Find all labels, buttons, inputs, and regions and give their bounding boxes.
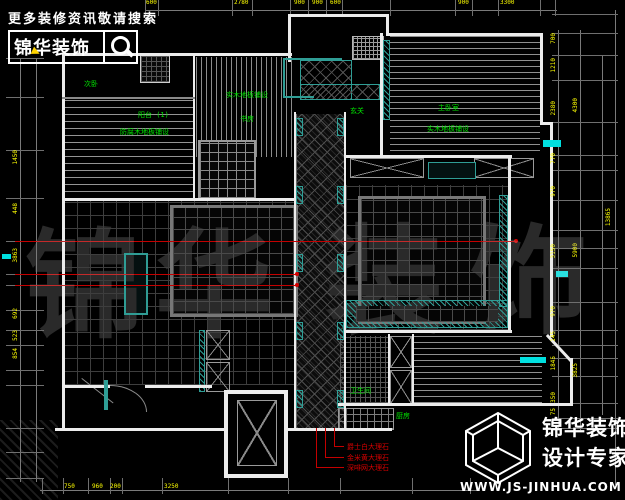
dim-extension-line <box>6 345 44 346</box>
dim-extension-line <box>162 478 163 494</box>
dim-chain-line <box>20 58 21 482</box>
red-leader-dot <box>514 239 518 243</box>
wall-segment <box>388 334 390 404</box>
dim-extension-line <box>552 80 618 81</box>
red-leader-line <box>334 428 335 447</box>
dim-top: 3300 <box>500 0 514 6</box>
dim-top: 600 <box>146 0 157 6</box>
shaft-xbox <box>390 370 412 404</box>
cad-floorplan-screenshot: 爵士白大理石 金米黄大理石 深啡网大理石 次卧 阳台 (1) 防腐木地板铺设 实… <box>0 0 625 500</box>
dim-extension-line <box>232 0 233 16</box>
dim-extension-line <box>412 478 413 494</box>
dim-extension-line <box>390 0 391 16</box>
red-leader-line <box>316 467 344 468</box>
dim-extension-line <box>472 0 473 16</box>
leftbed-area-inner <box>170 205 298 317</box>
teal-pilaster <box>337 118 344 136</box>
brand-slogan: 更多装修资讯敬请搜索 <box>8 8 158 27</box>
dim-left: 448 <box>12 203 19 214</box>
room-label-study: 书房 <box>240 114 254 124</box>
corner-watermark-pattern <box>0 420 58 500</box>
footer-website: WWW.JS-JINHUA.COM <box>460 480 622 494</box>
room-balcony1-floor <box>65 100 193 198</box>
dim-extension-line <box>552 268 618 269</box>
dim-chain-line <box>602 55 603 415</box>
wardrobe-teal <box>124 253 148 315</box>
teal-line <box>283 58 285 98</box>
wall-segment <box>344 155 512 158</box>
footer-brand-block: 锦华装饰 设计专家 WWW.JS-JINHUA.COM <box>458 404 625 500</box>
magnifier-icon <box>111 36 130 55</box>
shaft-xbox <box>206 330 230 360</box>
red-leader-line <box>316 428 317 468</box>
red-leader-dot <box>295 272 299 276</box>
wall-segment <box>145 385 212 388</box>
beam-xbox <box>350 158 424 178</box>
dim-extension-line <box>552 248 618 249</box>
wall-segment <box>62 53 65 431</box>
dim-extension-line <box>498 0 499 16</box>
dim-extension-line <box>6 478 44 479</box>
red-leader-line <box>15 241 516 242</box>
teal-pilaster <box>337 322 344 340</box>
wall-segment <box>386 33 543 36</box>
dim-chain-line <box>36 58 37 482</box>
red-leader-line <box>15 274 297 275</box>
dim-extension-line <box>252 0 253 16</box>
dim-top: 900 <box>294 0 305 6</box>
material-callout: 金米黄大理石 <box>347 453 389 463</box>
dim-extension-line <box>288 478 289 494</box>
dim-top: 900 <box>458 0 469 6</box>
dim-top: 2780 <box>234 0 248 6</box>
wall-segment <box>344 330 512 333</box>
dim-left: 1450 <box>12 150 19 164</box>
dim-top: 600 <box>330 0 341 6</box>
dim-extension-line <box>552 14 618 15</box>
dim-right-total: 13865 <box>605 208 612 226</box>
elevator-x <box>237 400 277 466</box>
room-label-bedroom2: 次卧 <box>84 79 98 89</box>
wall-segment <box>540 33 543 125</box>
beam-teal-panel <box>428 162 476 179</box>
cyan-highlight <box>2 254 11 259</box>
dim-right: 700 <box>550 33 557 44</box>
wall-segment <box>62 198 295 201</box>
wall-thin <box>62 97 195 99</box>
dim-right: 970 <box>550 186 557 197</box>
teal-pilaster <box>296 118 303 136</box>
teal-hatch-wall <box>499 195 508 307</box>
dim-extension-line <box>228 478 229 494</box>
dim-right: 1845 <box>550 356 557 370</box>
teal-pilaster <box>296 390 303 408</box>
corridor-wall <box>294 112 296 430</box>
teal-pilaster <box>296 186 303 204</box>
dim-bottom: 960 <box>92 483 103 490</box>
teal-pilaster <box>337 254 344 272</box>
door-swing-arc <box>110 385 147 412</box>
shaft-xbox <box>390 336 412 368</box>
finish-label-balcony1: 防腐木地板铺设 <box>120 127 169 137</box>
dim-right: 145 <box>550 331 557 342</box>
teal-hatch-wall <box>383 40 390 120</box>
beam-xbox <box>474 158 534 178</box>
footer-brand-name: 锦华装饰 <box>542 412 625 442</box>
room-label-master: 主卧室 <box>438 103 459 113</box>
dim-extension-line <box>158 0 159 16</box>
wall-segment <box>412 334 414 404</box>
dim-right-outer: 4300 <box>572 98 579 112</box>
room-kitchen-floor <box>414 336 542 403</box>
dim-extension-line <box>552 170 618 171</box>
dim-chain-line <box>40 490 480 491</box>
cube-logo-icon <box>458 410 538 486</box>
dim-extension-line <box>6 452 44 453</box>
wall-segment <box>288 14 389 17</box>
dim-extension-line <box>6 370 44 371</box>
dim-left: 3863 <box>12 248 19 262</box>
cyan-highlight <box>520 357 546 363</box>
wall-segment <box>55 428 227 431</box>
dim-extension-line <box>552 122 618 123</box>
dim-extension-line <box>552 155 618 156</box>
room-master-floor <box>390 36 540 156</box>
dim-top: 900 <box>312 0 323 6</box>
dim-extension-line <box>552 358 618 359</box>
header-brand-block: 更多装修资讯敬请搜索 锦华装饰 <box>8 8 158 64</box>
room-label-balcony1: 阳台 (1) <box>138 110 169 120</box>
dim-extension-line <box>6 198 44 199</box>
dim-extension-line <box>552 376 618 377</box>
dim-extension-line <box>552 302 618 303</box>
hatch-band-inner-grid <box>356 306 498 322</box>
brand-name: 锦华装饰 <box>10 34 90 60</box>
dim-extension-line <box>552 55 618 56</box>
corridor-wall <box>344 112 346 430</box>
footer-tagline: 设计专家 <box>542 442 625 472</box>
room-label-kitchen: 厨房 <box>396 411 410 421</box>
teal-pilaster <box>296 322 303 340</box>
dim-extension-line <box>6 385 44 386</box>
dim-right-outer: 3825 <box>572 363 579 377</box>
brand-divider <box>103 32 105 62</box>
dim-bottom: 3250 <box>164 483 178 490</box>
dim-right: 1210 <box>550 58 557 72</box>
dim-extension-line <box>6 97 44 98</box>
cyan-highlight <box>556 271 568 277</box>
dim-extension-line <box>552 345 618 346</box>
dim-bottom: 200 <box>110 483 121 490</box>
dim-extension-line <box>340 478 341 494</box>
red-leader-line <box>334 446 344 447</box>
dim-right: 350 <box>550 392 557 403</box>
red-leader-line <box>15 285 297 286</box>
dim-extension-line <box>552 200 618 201</box>
dim-bottom: 750 <box>64 483 75 490</box>
dim-right: 770 <box>550 153 557 164</box>
wall-segment <box>193 53 195 200</box>
finish-label-study: 实木地板铺设 <box>226 90 268 100</box>
brand-box: 锦华装饰 <box>8 30 138 64</box>
wall-segment <box>286 428 392 431</box>
dim-extension-line <box>552 330 618 331</box>
wall-segment <box>338 403 414 406</box>
dim-extension-line <box>552 33 618 34</box>
red-leader-line <box>325 457 344 458</box>
dim-right: 3150 <box>550 244 557 258</box>
cyan-highlight <box>543 140 561 147</box>
dim-chain-line <box>145 10 557 11</box>
dim-extension-line <box>88 478 89 494</box>
material-callout: 爵士白大理石 <box>347 442 389 452</box>
room-label-bathroom: 卫生间 <box>350 386 371 396</box>
teal-pilaster <box>296 254 303 272</box>
counter-grid <box>338 408 394 430</box>
dim-extension-line <box>555 0 556 16</box>
dim-extension-line <box>552 230 618 231</box>
material-callout: 深啡网大理石 <box>347 463 389 473</box>
dim-left: 523 <box>12 330 19 341</box>
dim-left: 854 <box>12 348 19 359</box>
teal-line <box>284 58 342 60</box>
finish-label-master: 实木地板铺设 <box>427 124 469 134</box>
wall-segment <box>380 33 383 157</box>
dim-extension-line <box>6 428 44 429</box>
dim-extension-line <box>540 0 541 16</box>
study-table-grid <box>198 140 256 200</box>
teal-hatch-shaft <box>199 330 205 392</box>
wall-segment <box>288 14 291 62</box>
door-leaf-teal <box>104 380 108 410</box>
elevator-shaft <box>224 390 288 478</box>
dim-right: 2380 <box>550 101 557 115</box>
dim-left: 692 <box>12 308 19 319</box>
dim-extension-line <box>42 478 43 494</box>
teal-line <box>284 96 314 98</box>
dim-right-outer: 5900 <box>572 243 579 257</box>
dim-extension-line <box>122 478 123 494</box>
dim-extension-line <box>455 0 456 16</box>
wall-segment <box>508 155 511 333</box>
dim-right: 970 <box>550 306 557 317</box>
room-label-foyer: 玄关 <box>350 106 364 116</box>
red-leader-dot <box>295 283 299 287</box>
teal-pilaster <box>337 186 344 204</box>
wall-segment <box>62 385 110 388</box>
red-leader-line <box>325 428 326 458</box>
